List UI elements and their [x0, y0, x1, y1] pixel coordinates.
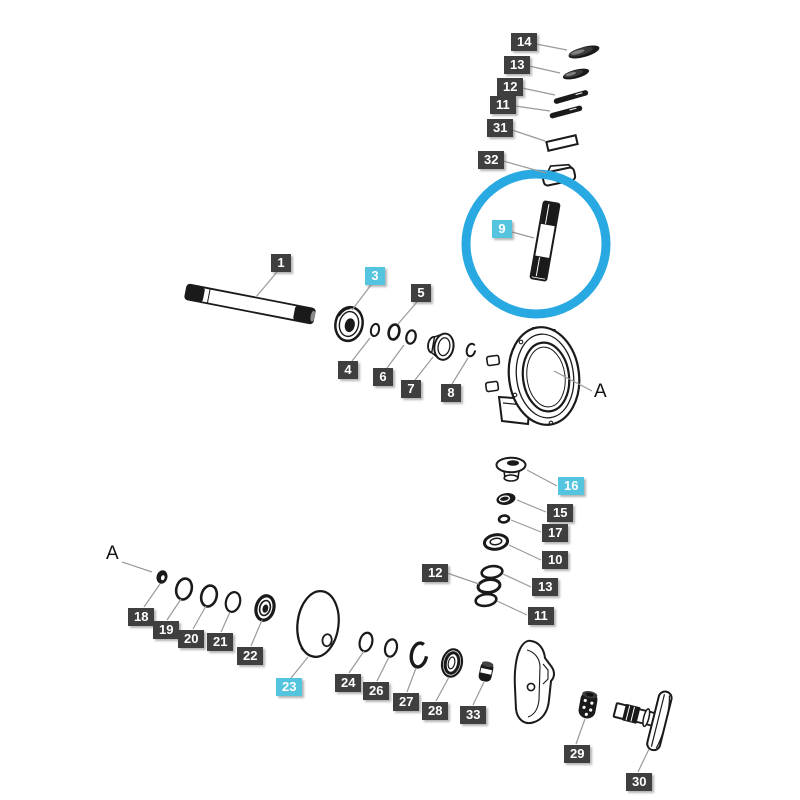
- part-label-1[interactable]: 1: [271, 254, 291, 272]
- part-ring-4: [370, 323, 381, 337]
- part-oring-19: [174, 577, 194, 601]
- part-oring-24: [358, 631, 375, 652]
- parts-diagram-canvas: 1413121131329135467816151710121311181920…: [0, 0, 800, 800]
- part-ring-5: [387, 323, 401, 340]
- leader-line: [576, 719, 585, 744]
- leader-line: [638, 749, 649, 772]
- part-label-29[interactable]: 29: [564, 745, 590, 763]
- part-label-3[interactable]: 3: [365, 267, 385, 285]
- part-label-4[interactable]: 4: [338, 361, 358, 379]
- leader-line: [512, 232, 534, 238]
- part-ring-6: [405, 329, 417, 344]
- part-cover-plate: [515, 641, 554, 723]
- part-label-33[interactable]: 33: [460, 706, 486, 724]
- part-label-22[interactable]: 22: [237, 647, 263, 665]
- part-oring-21: [224, 591, 243, 614]
- part-snap-ring-8: [465, 343, 476, 357]
- diagram-svg: [0, 0, 800, 800]
- part-pin-12: [556, 92, 585, 101]
- part-oring-20: [199, 584, 219, 608]
- leader-line: [407, 668, 416, 692]
- part-pin-11: [552, 107, 579, 115]
- part-coupler-29: [577, 690, 598, 720]
- leader-line: [452, 358, 468, 384]
- part-cap-7: [426, 331, 456, 361]
- part-label-23[interactable]: 23: [276, 678, 302, 696]
- leader-line: [473, 682, 484, 705]
- part-label-30[interactable]: 30: [626, 773, 652, 791]
- part-key-31: [546, 135, 577, 151]
- leader-line: [447, 573, 479, 584]
- part-bearing-28: [440, 647, 465, 678]
- part-label-28[interactable]: 28: [422, 702, 448, 720]
- leader-line: [436, 677, 449, 701]
- leader-line: [398, 302, 417, 324]
- part-label-26[interactable]: 26: [363, 682, 389, 700]
- part-label-14-top[interactable]: 14: [511, 33, 537, 51]
- leader-line: [529, 66, 560, 73]
- part-label-12-top[interactable]: 12: [497, 78, 523, 96]
- reference-letter-housing: A: [594, 382, 607, 402]
- part-label-19[interactable]: 19: [153, 621, 179, 639]
- leader-line: [415, 357, 433, 380]
- part-label-10[interactable]: 10: [542, 551, 568, 569]
- leader-line: [256, 272, 277, 297]
- part-label-6[interactable]: 6: [373, 368, 393, 386]
- part-snap-ring-27: [409, 642, 428, 668]
- part-disc-23: [294, 589, 343, 660]
- part-label-15[interactable]: 15: [547, 504, 573, 522]
- part-bearing-22: [253, 594, 276, 623]
- leader-line: [511, 520, 541, 532]
- leader-line: [377, 657, 389, 681]
- part-label-31[interactable]: 31: [487, 119, 513, 137]
- leader-line: [352, 338, 370, 361]
- part-ring-18: [155, 569, 169, 585]
- part-oring-26: [383, 638, 399, 658]
- part-seal-14: [567, 43, 601, 61]
- leader-line: [193, 606, 206, 629]
- part-label-13-lower[interactable]: 13: [532, 578, 558, 596]
- part-shaft-9: [530, 201, 559, 281]
- leader-line: [122, 562, 152, 572]
- part-hub-30: [608, 681, 673, 752]
- leader-line: [352, 285, 371, 310]
- leader-line: [221, 612, 230, 632]
- part-label-7[interactable]: 7: [401, 380, 421, 398]
- part-cap-16: [497, 458, 526, 481]
- part-label-18[interactable]: 18: [128, 608, 154, 626]
- leader-line: [144, 584, 160, 607]
- leader-line: [291, 657, 308, 678]
- leader-line: [527, 470, 557, 486]
- part-label-12-lower[interactable]: 12: [422, 564, 448, 582]
- part-label-17[interactable]: 17: [542, 524, 568, 542]
- leader-line: [387, 345, 404, 368]
- part-label-27[interactable]: 27: [393, 693, 419, 711]
- leader-line: [251, 620, 262, 646]
- part-label-5[interactable]: 5: [411, 284, 431, 302]
- leader-line: [349, 651, 364, 673]
- part-label-24[interactable]: 24: [335, 674, 361, 692]
- part-label-11-top[interactable]: 11: [490, 96, 516, 114]
- part-label-13-top[interactable]: 13: [504, 56, 530, 74]
- leader-line: [509, 545, 541, 560]
- leader-line: [497, 601, 527, 615]
- part-label-11-lower[interactable]: 11: [528, 607, 554, 625]
- leader-line: [536, 44, 567, 50]
- part-seal-10: [484, 533, 509, 550]
- part-bearing-3: [332, 305, 365, 344]
- part-label-21[interactable]: 21: [207, 633, 233, 651]
- part-label-8[interactable]: 8: [441, 384, 461, 402]
- part-housing-a: [486, 323, 585, 429]
- leader-line: [515, 106, 550, 111]
- part-oring-13-lower: [481, 565, 503, 579]
- leader-line: [522, 88, 555, 95]
- leader-line: [517, 500, 546, 512]
- part-oring-12-lower: [477, 578, 501, 594]
- part-ring-17: [499, 515, 510, 523]
- part-oring-11-lower: [475, 593, 497, 607]
- part-label-9[interactable]: 9: [492, 220, 512, 238]
- part-bushing-33: [478, 660, 495, 682]
- part-label-20[interactable]: 20: [178, 630, 204, 648]
- part-seal-15: [496, 492, 517, 507]
- part-label-32[interactable]: 32: [478, 151, 504, 169]
- part-label-16[interactable]: 16: [558, 477, 584, 495]
- reference-letter-lower: A: [106, 544, 119, 564]
- leader-line: [167, 599, 181, 620]
- leader-line: [503, 574, 531, 587]
- leader-line: [512, 130, 545, 141]
- part-seal-13: [562, 66, 590, 81]
- part-shaft-1: [185, 284, 317, 324]
